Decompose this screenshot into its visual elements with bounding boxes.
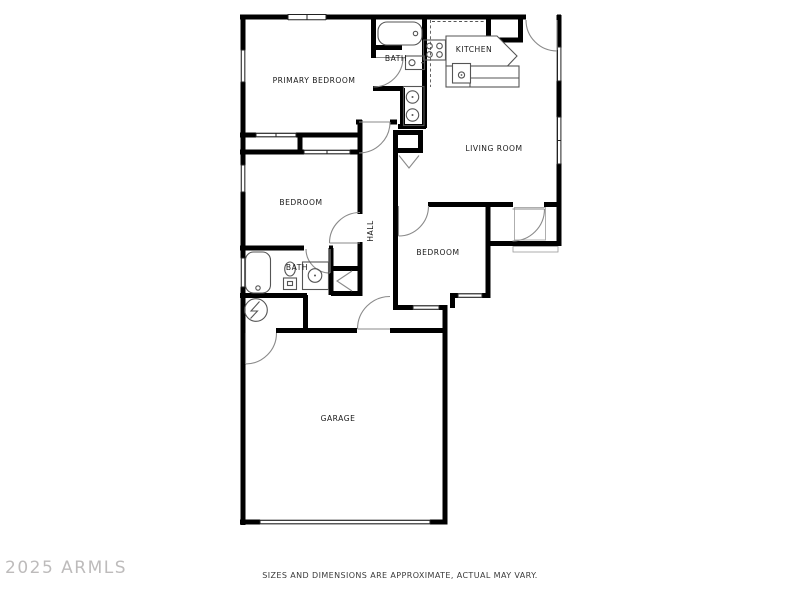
window	[458, 293, 482, 298]
door-arc	[359, 122, 390, 153]
door-arc	[399, 206, 429, 236]
window	[241, 258, 246, 287]
disclaimer: SIZES AND DIMENSIONS ARE APPROXIMATE, AC…	[0, 571, 800, 580]
floor-plan: PRIMARY BEDROOM BATH KITCHEN LIVING ROOM…	[0, 0, 800, 600]
window	[413, 305, 439, 310]
door-arc	[358, 297, 391, 330]
window	[557, 47, 562, 81]
room-label-hall: HALL	[366, 220, 375, 242]
bifold-door-icon	[337, 271, 352, 291]
window	[557, 117, 562, 164]
door-arc	[246, 333, 277, 364]
floor-plan-page: PRIMARY BEDROOM BATH KITCHEN LIVING ROOM…	[0, 0, 800, 600]
door-arc	[526, 20, 557, 51]
bifold-door-icon	[399, 156, 419, 169]
window	[288, 14, 326, 20]
doors	[246, 20, 558, 364]
fixtures	[245, 20, 558, 321]
sliding-door	[256, 133, 296, 138]
window	[241, 50, 246, 82]
dishwasher-icon	[453, 64, 471, 84]
hall-closet	[396, 133, 421, 151]
double-sink-icon	[404, 87, 425, 126]
room-label-bath: BATH	[286, 263, 308, 272]
door-arc	[330, 213, 361, 244]
room-label-primary-bedroom: PRIMARY BEDROOM	[273, 76, 356, 85]
room-label-living-room: LIVING ROOM	[465, 144, 522, 153]
room-label-primary-bath: BATH	[385, 54, 407, 63]
room-label-bedroom-right: BEDROOM	[416, 248, 459, 257]
bathtub-icon	[246, 252, 271, 293]
room-label-garage: GARAGE	[321, 414, 356, 423]
garage-door	[260, 520, 430, 525]
water-heater-icon	[245, 299, 268, 322]
door-arc	[513, 209, 545, 241]
sink-icon	[406, 56, 425, 70]
room-label-kitchen: KITCHEN	[456, 45, 492, 54]
sliding-door	[304, 150, 350, 155]
bathtub-icon	[378, 22, 422, 45]
window	[241, 165, 246, 192]
room-label-bedroom-left: BEDROOM	[279, 198, 322, 207]
